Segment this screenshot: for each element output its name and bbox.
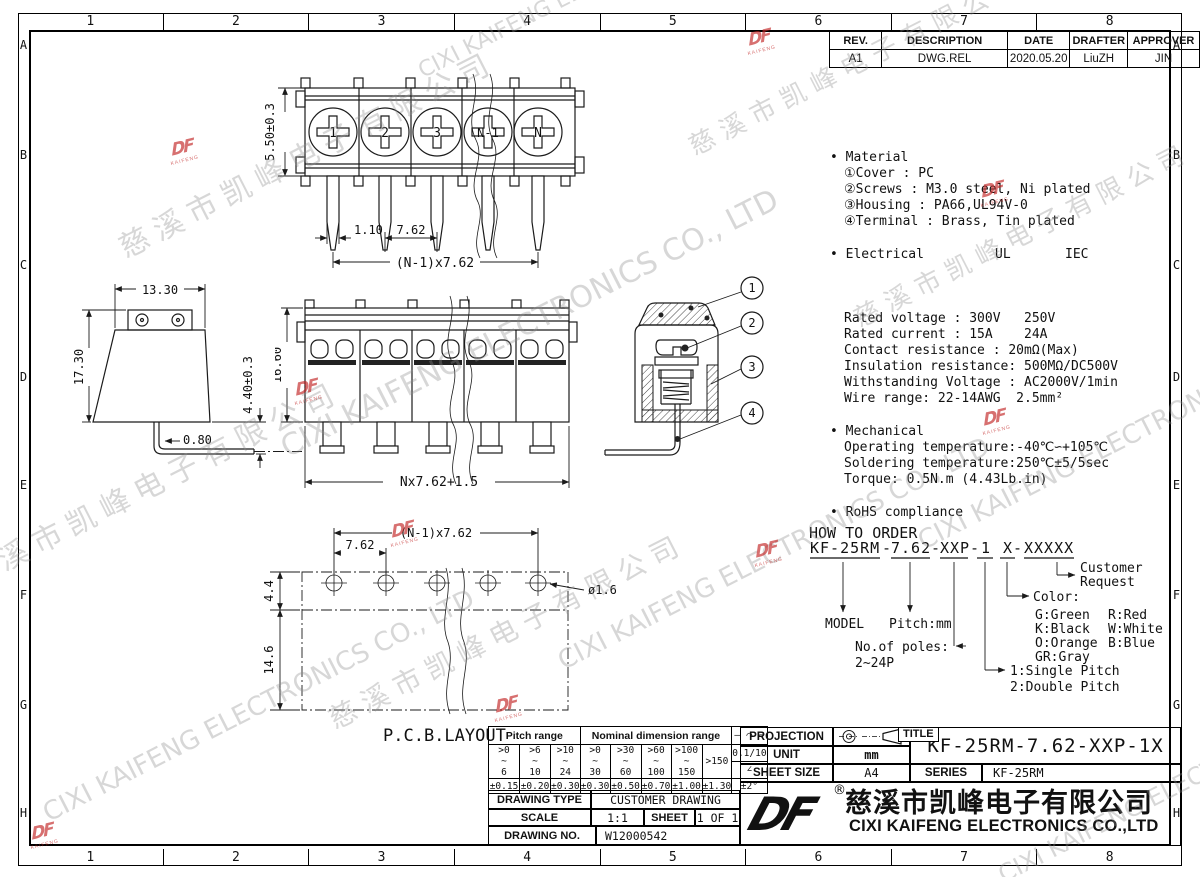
spec-line: Operating temperature:-40℃∽+105℃ [844,440,1182,456]
first-angle-projection-icon [837,728,907,745]
sheet-size-label: SHEET SIZE [740,764,833,782]
ruler-col: 5 [601,13,747,30]
rev-value: JIN [1128,50,1200,68]
electrical-title: • Electrical UL IEC [830,247,1182,311]
title-block: PROJECTION UNIT mm SHEET SIZE A4 KF-25RM… [740,727,1181,846]
drawing-info-table: DRAWING TYPE CUSTOMER DRAWING SCALE 1:1 … [488,790,740,845]
rev-header: DESCRIPTION [882,32,1008,50]
mechanical-title: • Mechanical [830,424,1182,440]
series-label: SERIES [910,764,982,782]
range-cell: >30 ~ 60 [610,745,641,779]
spec-line: ④Terminal : Brass, Tin plated [844,214,1182,230]
ruler-row: A [18,38,29,52]
spec-line: Rated current : 15A 24A [844,327,1182,343]
ruler-col: 6 [746,13,892,30]
rev-value: LiuZH [1070,50,1128,68]
material-title: • Material [830,150,1182,166]
ruler-col: 7 [892,849,1038,866]
rev-value: A1 [830,50,882,68]
ruler-col: 2 [164,849,310,866]
sheet-label: SHEET [644,809,695,826]
ruler-row: G [1171,698,1182,712]
ruler-row: E [18,478,29,492]
rev-header: APPROVER [1128,32,1200,50]
company-logo: DF [742,787,819,841]
range-cell: >100 ~ 150 [671,745,702,779]
drawing-no-value: W12000542 [596,826,740,845]
ruler-row: B [18,148,29,162]
ruler-row: F [18,588,29,602]
ul-column-header: UL [995,247,1011,263]
ruler-row: G [18,698,29,712]
company-name-cn: 慈溪市凯峰电子有限公司 [845,781,1153,820]
ruler-row: D [18,370,29,384]
nominal-range-header: Nominal dimension range [580,727,732,745]
rev-header: DATE [1007,32,1070,50]
ruler-col: 4 [455,13,601,30]
drawing-title: KF-25RM-7.62-XXP-1X [910,727,1181,764]
spec-line: Soldering temperature:250℃±5/5sec [844,456,1182,472]
tolerance-table: Pitch range Nominal dimension range — ⌒ … [488,726,768,794]
rev-header: REV. [830,32,882,50]
rev-header: DRAFTER [1070,32,1128,50]
scale-value: 1:1 [591,809,644,826]
ruler-col: 3 [309,849,455,866]
scale-label: SCALE [488,809,591,826]
unit-label: UNIT [740,746,833,764]
sheet-value: 1 OF 1 [695,809,740,826]
spec-block: • Material ①Cover : PC ②Screws : M3.0 st… [830,150,1182,521]
ruler-bottom: 1 2 3 4 5 6 7 8 [18,849,1182,866]
spec-line: Torque: 0.5N.m (4.43Lb.in) [844,472,1182,488]
spec-line: Insulation resistance: 500MΩ/DC500V [844,359,1182,375]
rev-value: DWG.REL [882,50,1008,68]
ruler-col: 4 [455,849,601,866]
ruler-col: 6 [746,849,892,866]
range-cell: >60 ~ 100 [641,745,671,779]
spec-line: Rated voltage : 300V 250V [844,311,1182,327]
spec-line: ①Cover : PC [844,166,1182,182]
title-label: TITLE [898,727,939,742]
ruler-col: 3 [309,13,455,30]
spec-line: Wire range: 22-14AWG 2.5mm² [844,391,1182,407]
spec-line: ②Screws : M3.0 steel, Ni plated [844,182,1182,198]
ruler-col: 5 [601,849,747,866]
range-cell: >10 ~ 24 [551,745,581,779]
rev-value: 2020.05.20 [1007,50,1070,68]
ruler-col: 7 [892,13,1038,30]
range-cell: >0 ~ 6 [489,745,520,779]
ruler-col: 2 [164,13,310,30]
sheet-size-value: A4 [833,764,910,782]
ruler-col: 8 [1037,849,1182,866]
drawing-type-label: DRAWING TYPE [488,790,591,809]
drawing-no-label: DRAWING NO. [488,826,596,845]
series-value: KF-25RM [982,764,1181,782]
ruler-col: 1 [18,849,164,866]
unit-value: mm [833,746,910,764]
ruler-col: 8 [1037,13,1182,30]
range-cell: >0 ~ 30 [580,745,610,779]
ruler-row: F [1171,588,1182,602]
ruler-row: C [18,258,29,272]
range-cell: >150 [702,745,732,779]
drawing-type-value: CUSTOMER DRAWING [591,790,740,809]
ruler-col: 1 [18,13,164,30]
pitch-range-header: Pitch range [489,727,581,745]
ruler-top: 1 2 3 4 5 6 7 8 [18,13,1182,30]
drawing-sheet: 1 2 3 4 5 6 7 8 1 2 3 4 5 6 7 8 A B C D … [0,0,1200,877]
projection-label: PROJECTION [740,727,833,746]
revision-table: REV. DESCRIPTION DATE DRAFTER APPROVER A… [829,31,1200,68]
ruler-left: A B C D E F G H [18,30,29,846]
spec-line: Withstanding Voltage : AC2000V/1min [844,375,1182,391]
ruler-row: H [18,806,29,820]
rohs-title: • RoHS compliance [830,505,1182,521]
iec-column-header: IEC [1065,247,1088,263]
company-zone: DF ® 慈溪市凯峰电子有限公司 CIXI KAIFENG ELECTRONIC… [740,782,1181,846]
spec-line: ③Housing : PA66,UL94V-0 [844,198,1182,214]
company-name-en: CIXI KAIFENG ELECTRONICS CO.,LTD [849,817,1159,836]
spec-line: Contact resistance : 20mΩ(Max) [844,343,1182,359]
range-cell: >6 ~ 10 [520,745,551,779]
